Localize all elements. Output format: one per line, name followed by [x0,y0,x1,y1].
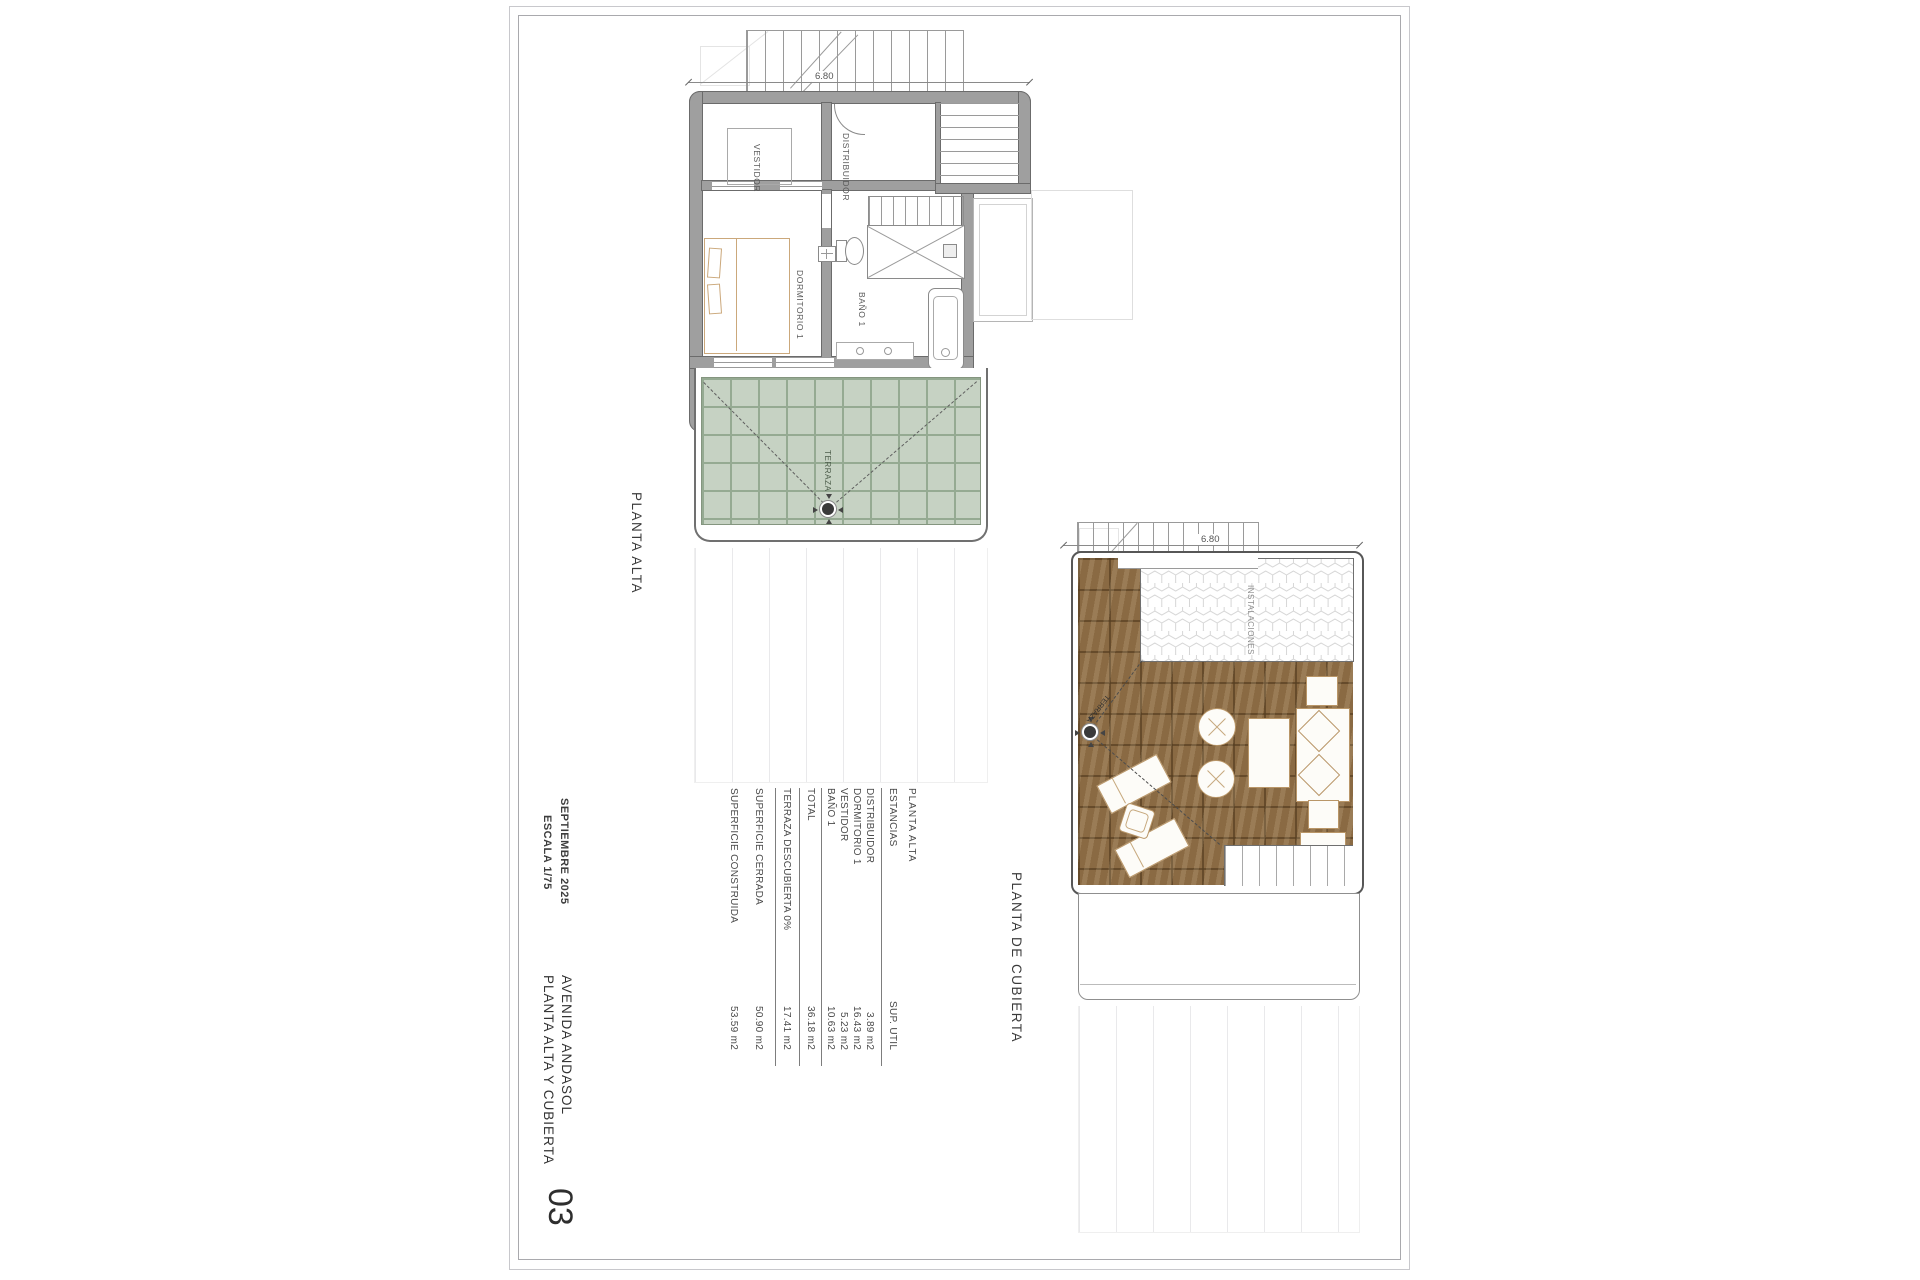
adjacent-roof-ghost [1031,190,1133,320]
dimension-label: 6.80 [812,71,837,82]
row-label: DORMITORIO 1 [851,788,862,865]
drawing-sheet: 6.80 [0,0,1920,1280]
pergola-slats [694,548,988,783]
table-header-label: PLANTA ALTA [906,788,917,862]
total-value: 36.18 m2 [804,1006,817,1050]
project-title: AVENIDA ANDASOL [559,975,574,1115]
room-label-distribuidor: DISTRIBUIDOR [841,133,851,201]
partition-vestidor-distribuidor [822,103,831,181]
slat-screen [1224,845,1353,886]
side-table [1306,676,1338,706]
row-value: 10.63 m2 [824,1006,837,1050]
table-total-row: TOTAL 36.18 m2 [799,788,822,1066]
row-value: 17.41 m2 [780,1006,793,1050]
dimension-label: 6.80 [1198,534,1223,545]
plan-cubierta-title: PLANTA DE CUBIERTA [1009,872,1024,1043]
table-header: PLANTA ALTA [905,788,918,1066]
area-table: PLANTA ALTA ESTANCIAS SUP. UTIL DISTRIBU… [714,788,918,1066]
sink [818,246,836,262]
row-value: 5.23 m2 [837,1012,850,1050]
wall-right-stair [1019,92,1030,193]
coffee-table [1248,718,1290,788]
terrace-tiles [701,377,981,525]
sheet-number: 03 [542,1188,578,1226]
vanity [836,342,914,360]
stair-treads-landing [868,196,964,226]
row-value: 3.89 m2 [863,1012,876,1050]
row-label: SUPERFICIE CONSTRUIDA [728,788,739,923]
door-opening [822,194,831,228]
shower-head [943,244,957,258]
pouf [1198,708,1236,746]
wall-left [690,92,702,368]
row-value: 50.90 m2 [752,1006,765,1050]
side-table [1308,800,1339,829]
stair-landing [1118,556,1258,569]
row-label: SUPERFICIE CERRADA [753,788,764,905]
sheet-date: SEPTIEMBRE 2025 [558,798,570,905]
basin [884,347,892,355]
col-area-label: SUP. UTIL [886,1001,899,1050]
pillow [707,248,722,279]
sheet-scale: ESCALA 1/75 [541,815,553,890]
table-row: TERRAZA DESCUBIERTA 0% 17.41 m2 [775,788,793,1066]
stair-run [746,30,964,94]
basin [856,347,864,355]
partition-stair-bottom [936,184,1030,193]
pillow [707,284,722,315]
window [714,357,772,368]
row-label: BAÑO 1 [825,788,836,826]
toilet [845,237,864,265]
table-row: BAÑO 1 10.63 m2 [824,788,837,1066]
plan-alta-title: PLANTA ALTA [629,492,644,594]
total-label: TOTAL [805,788,816,821]
room-label-terraza-alta: TERRAZA [823,450,832,492]
room-label-bano: BAÑO 1 [857,292,867,327]
dimension-line [1063,545,1360,546]
row-value: 16.43 m2 [850,1006,863,1050]
row-label: VESTIDOR [838,788,849,842]
table-column-headers: ESTANCIAS SUP. UTIL [881,788,899,1066]
room-label-instalaciones: INSTALACIONES [1246,585,1255,655]
table-row: VESTIDOR 5.23 m2 [837,788,850,1066]
col-room-label: ESTANCIAS [887,788,898,847]
room-label-dormitorio: DORMITORIO 1 [795,270,805,339]
table-row: SUPERFICIE CONSTRUIDA 53.59 m2 [727,788,740,1066]
window [776,357,834,368]
dimension-line [688,82,1030,83]
balcony [973,198,1033,322]
pouf [1197,760,1235,798]
drain-icon [1084,726,1096,738]
bed-fold-line [736,239,737,351]
bathtub-drain [941,348,950,357]
drain-icon [822,503,834,515]
table-row: DORMITORIO 1 16.43 m2 [850,788,863,1066]
sheet-title: PLANTA ALTA Y CUBIERTA [541,975,556,1165]
row-label: TERRAZA DESCUBIERTA 0% [781,788,792,930]
table-row: SUPERFICIE CERRADA 50.90 m2 [752,788,765,1066]
room-label-vestidor: VESTIDOR [752,144,762,192]
row-value: 53.59 m2 [727,1006,740,1050]
nightstand [704,222,718,235]
lower-roof-line [1080,984,1356,985]
pergola-slats [1078,1006,1360,1233]
wall-top [690,92,1030,103]
stair-treads-interior [940,103,1019,184]
table-row: DISTRIBUIDOR 3.89 m2 [863,788,876,1066]
row-label: DISTRIBUIDOR [864,788,875,863]
